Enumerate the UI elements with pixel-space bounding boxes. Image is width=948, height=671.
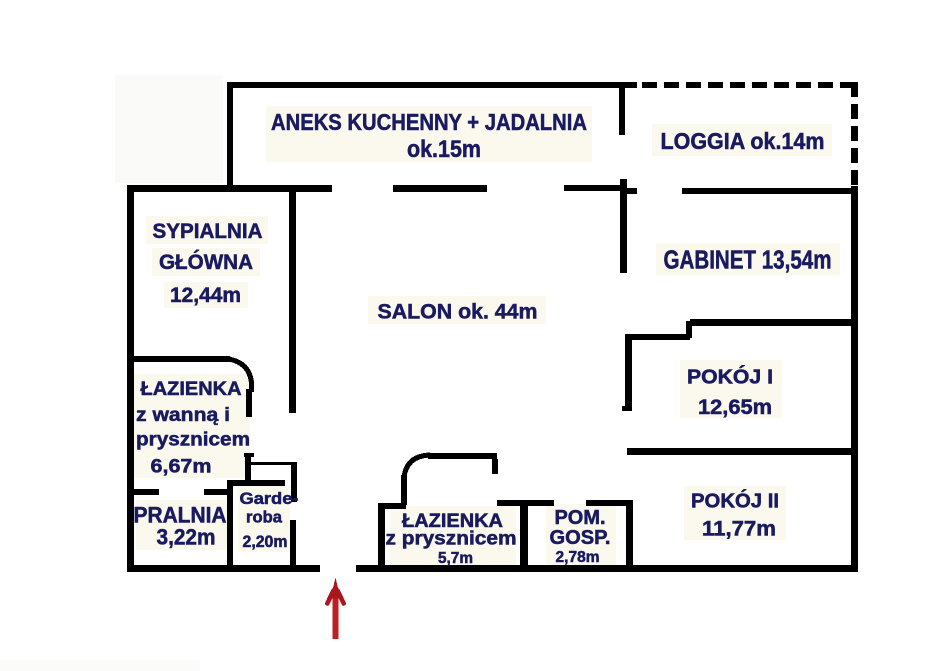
svg-text:2,78m: 2,78m [556, 549, 600, 566]
svg-text:11,77m: 11,77m [702, 518, 776, 541]
svg-text:roba: roba [246, 509, 283, 527]
svg-text:ok.15m: ok.15m [407, 136, 481, 163]
svg-text:SYPIALNIA: SYPIALNIA [153, 219, 263, 243]
svg-text:5,7m: 5,7m [438, 550, 473, 567]
svg-text:ŁAZIENKA: ŁAZIENKA [141, 378, 242, 400]
svg-text:2,20m: 2,20m [243, 533, 288, 551]
svg-text:12,65m: 12,65m [698, 396, 772, 419]
svg-text:POM.: POM. [555, 507, 606, 529]
svg-text:POKÓJ I: POKÓJ I [687, 365, 773, 389]
svg-text:SALON ok. 44m: SALON ok. 44m [378, 300, 538, 324]
svg-text:ANEKS KUCHENNY + JADALNIA: ANEKS KUCHENNY + JADALNIA [271, 109, 587, 135]
svg-text:POKÓJ II: POKÓJ II [691, 489, 779, 513]
svg-text:Garde-: Garde- [240, 490, 299, 508]
svg-text:GŁÓWNA: GŁÓWNA [159, 249, 253, 274]
svg-text:LOGGIA ok.14m: LOGGIA ok.14m [661, 128, 825, 154]
svg-text:z prysznicem: z prysznicem [386, 529, 517, 550]
svg-text:6,67m: 6,67m [151, 456, 212, 478]
svg-text:GOSP.: GOSP. [550, 527, 611, 549]
svg-text:z wanną i: z wanną i [136, 404, 230, 426]
svg-text:GABINET 13,54m: GABINET 13,54m [664, 247, 832, 275]
svg-text:12,44m: 12,44m [170, 283, 241, 307]
svg-text:prysznicem: prysznicem [136, 429, 250, 451]
svg-text:3,22m: 3,22m [157, 525, 216, 550]
